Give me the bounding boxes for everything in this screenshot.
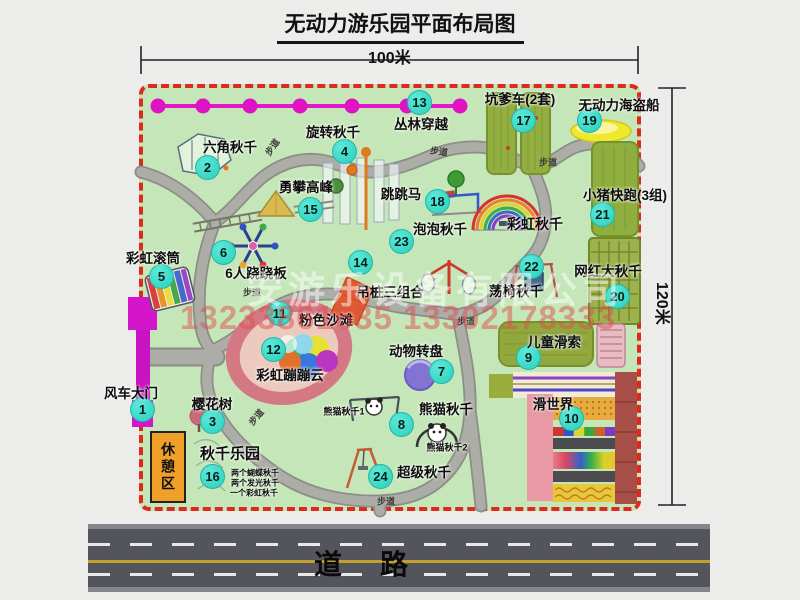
marker-badge-24: 24 — [368, 464, 393, 489]
footpath-label-2: 步道 — [539, 156, 557, 169]
marker-badge-21: 21 — [590, 202, 615, 227]
layout-canvas: 无动力游乐园平面布局图 100米 120米 — [0, 0, 800, 600]
marker-label-1: 风车大门 — [104, 382, 158, 402]
marker-badge-5: 5 — [149, 264, 174, 289]
marker-label-2: 六角秋千 — [203, 136, 257, 156]
marker-label-12: 彩虹蹦蹦云 — [256, 364, 324, 384]
marker-label-16: 秋千乐园 — [200, 443, 260, 464]
marker-label-5: 彩虹滚筒 — [126, 247, 180, 267]
marker-layer: 1风车大门2六角秋千3樱花树4旋转秋千5彩虹滚筒66人跷跷板7动物转盘8熊猫秋千… — [0, 0, 800, 600]
marker-badge-2: 2 — [195, 155, 220, 180]
footpath-label-5: 步道 — [245, 406, 267, 428]
marker-badge-18: 18 — [425, 189, 450, 214]
marker-label-7: 动物转盘 — [389, 340, 443, 360]
extra-label-0: 彩虹秋千 — [507, 214, 563, 234]
marker-badge-23: 23 — [389, 229, 414, 254]
marker-label-14: 吊桩三组合 — [356, 281, 424, 301]
marker-label-18: 跳跳马 — [381, 183, 422, 203]
marker-label-15: 勇攀高峰 — [279, 176, 333, 196]
marker-label-13: 丛林穿越 — [394, 113, 448, 133]
marker-badge-22: 22 — [519, 254, 544, 279]
footpath-label-3: 步道 — [243, 286, 261, 299]
marker-label-3: 樱花树 — [192, 393, 233, 413]
footpath-label-6: 步道 — [377, 495, 395, 508]
marker-label-24: 超级秋千 — [397, 461, 451, 481]
extra-label-2: 熊猫秋千2 — [426, 441, 467, 454]
marker-badge-15: 15 — [298, 197, 323, 222]
marker-label-22: 荡椅秋千 — [489, 280, 543, 300]
marker-label-11: 粉色沙滩 — [299, 309, 353, 329]
marker-badge-14: 14 — [348, 250, 373, 275]
marker-badge-13: 13 — [407, 90, 432, 115]
marker-badge-4: 4 — [332, 139, 357, 164]
marker-badge-8: 8 — [389, 412, 414, 437]
marker-label-23: 泡泡秋千 — [413, 218, 467, 238]
marker-label-17: 坑爹车(2套) — [485, 88, 556, 108]
footpath-label-4: 步道 — [457, 315, 475, 328]
marker-label-6: 6人跷跷板 — [225, 262, 287, 282]
marker-badge-7: 7 — [429, 359, 454, 384]
extra-label-5: 一个彩虹秋千 — [230, 488, 278, 499]
footpath-label-1: 步道 — [429, 143, 449, 158]
marker-label-10: 滑世界 — [533, 393, 574, 413]
marker-badge-17: 17 — [511, 108, 536, 133]
marker-label-9: 儿童滑索 — [527, 331, 581, 351]
marker-badge-12: 12 — [261, 337, 286, 362]
extra-label-1: 熊猫秋千1 — [323, 405, 364, 418]
marker-label-19: 无动力海盗船 — [579, 94, 660, 114]
marker-badge-20: 20 — [605, 284, 630, 309]
marker-badge-11: 11 — [267, 301, 292, 326]
marker-label-21: 小猪快跑(3组) — [583, 184, 667, 204]
marker-badge-16: 16 — [200, 464, 225, 489]
marker-label-20: 网红大秋千 — [574, 260, 642, 280]
marker-label-4: 旋转秋千 — [306, 121, 360, 141]
marker-label-8: 熊猫秋千 — [419, 398, 473, 418]
footpath-label-0: 步道 — [262, 136, 283, 158]
